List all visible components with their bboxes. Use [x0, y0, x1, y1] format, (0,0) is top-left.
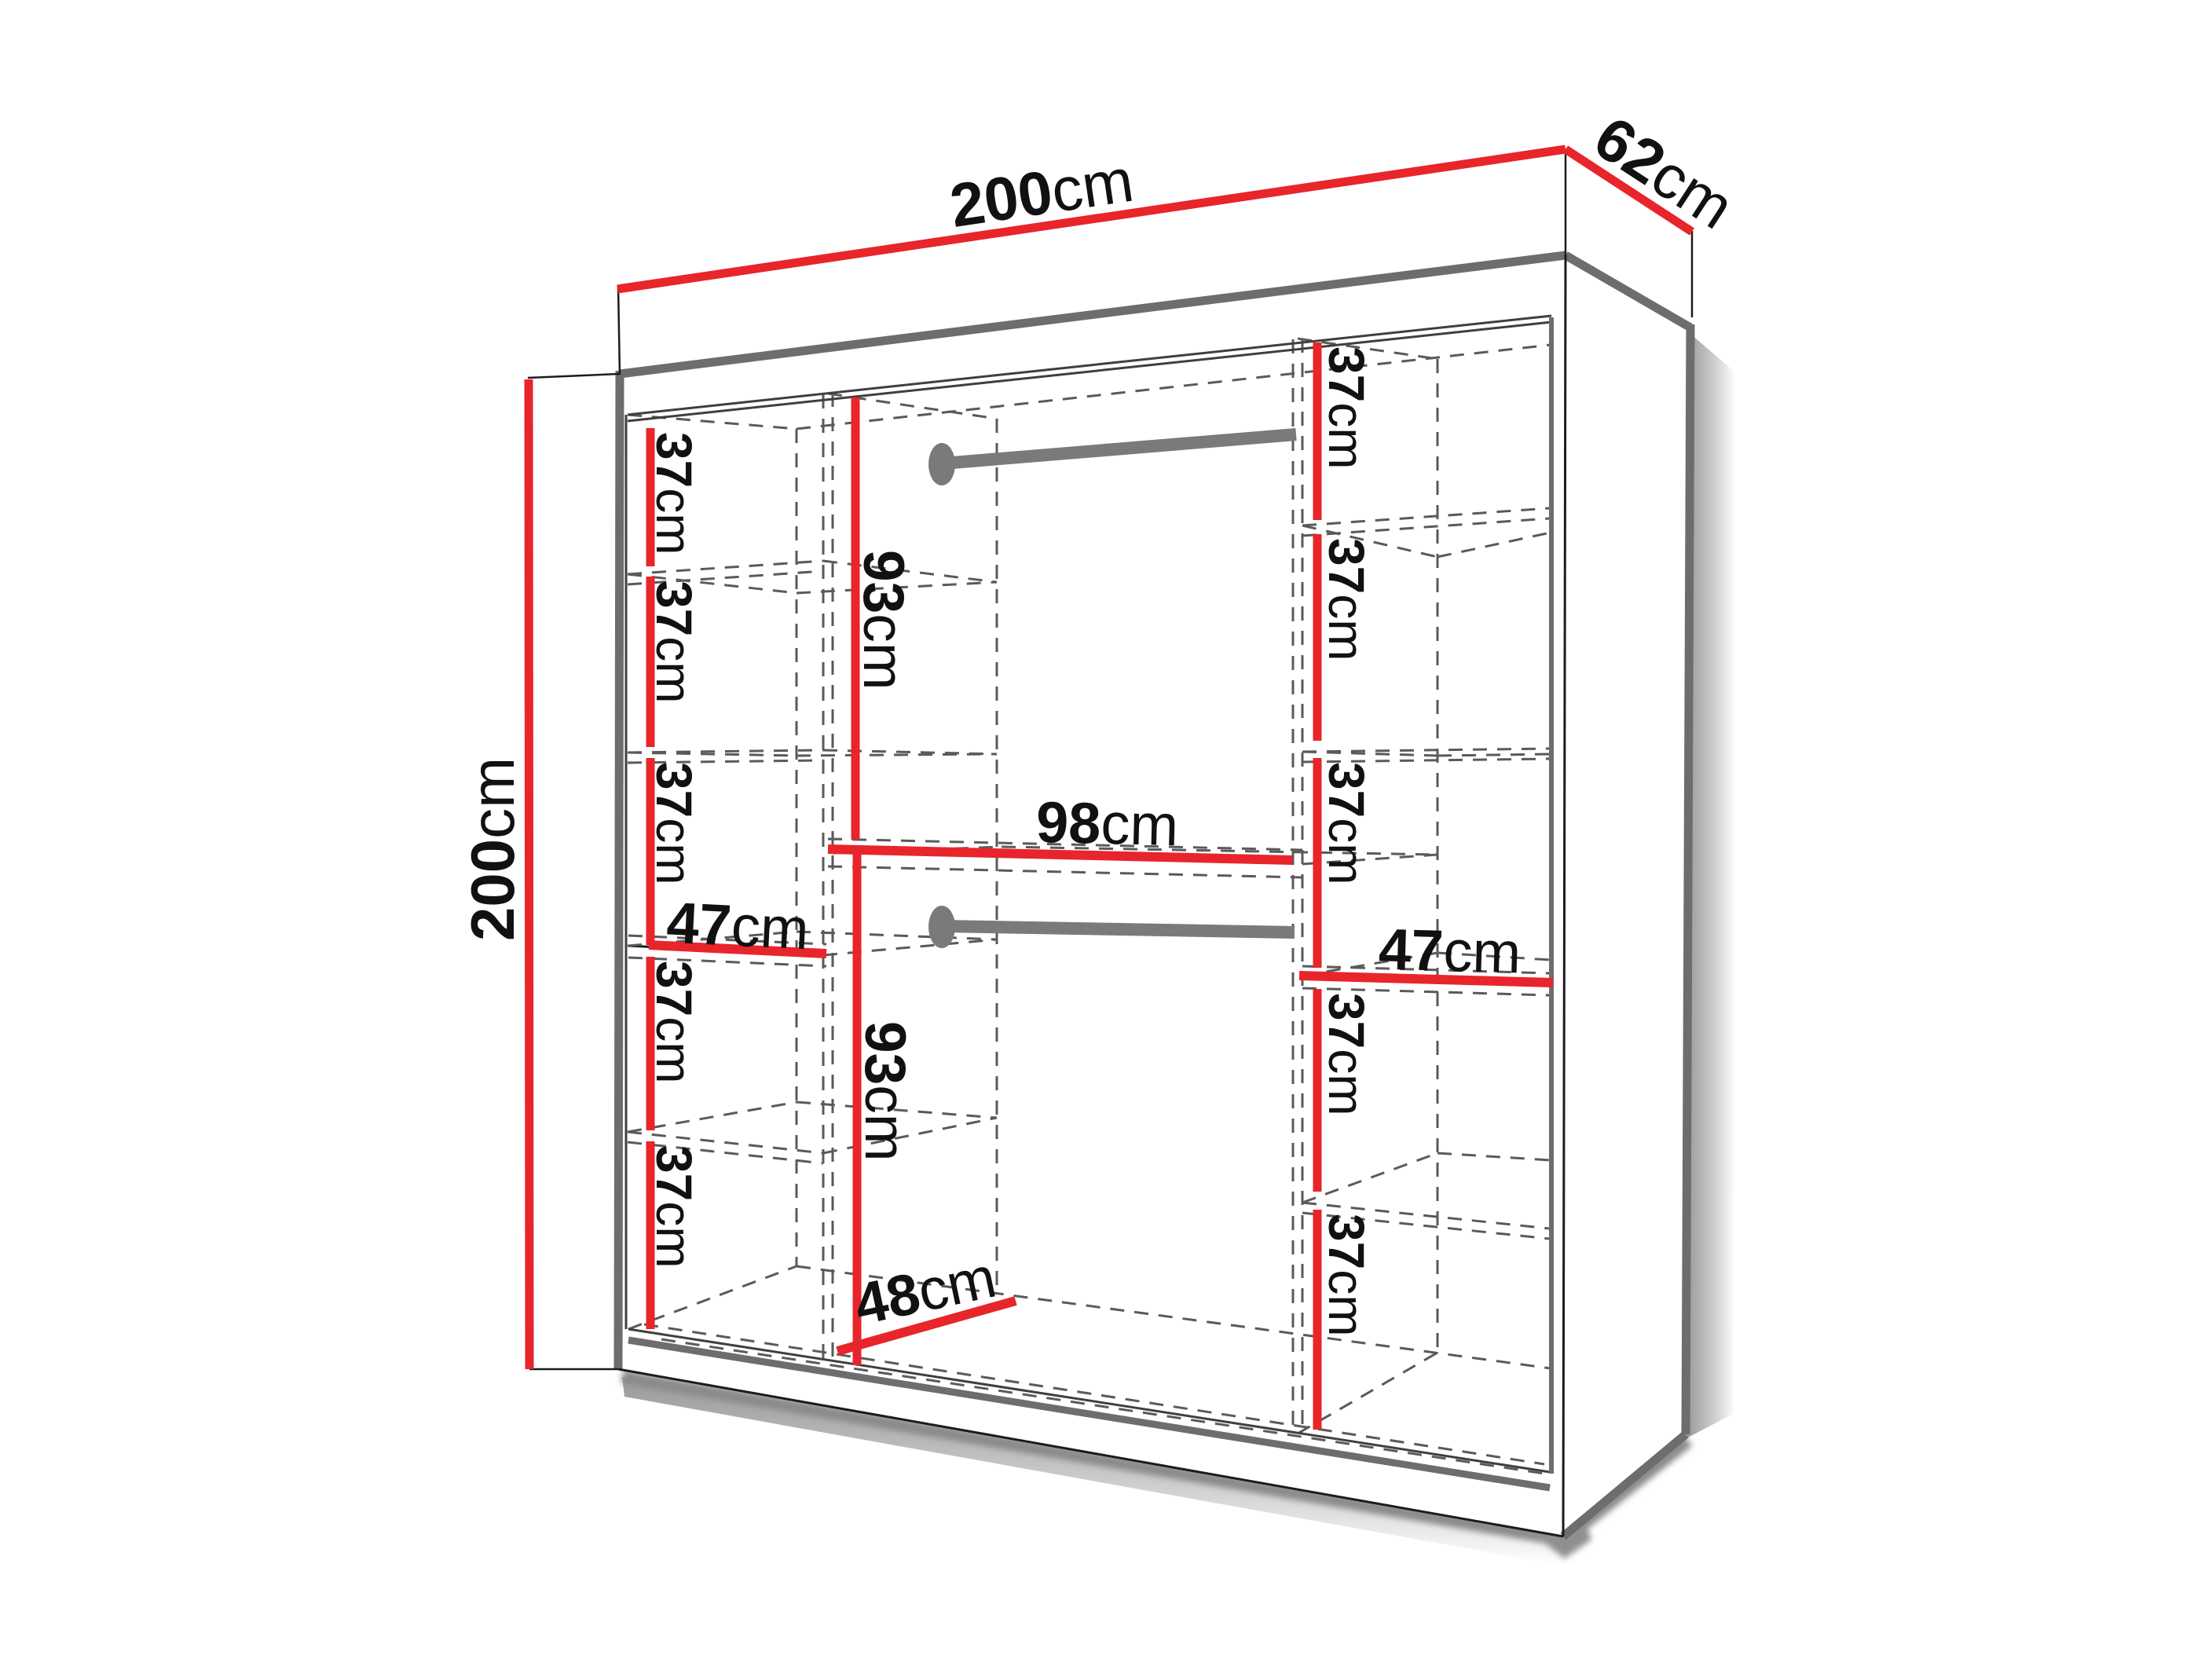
svg-text:37cm: 37cm — [1318, 346, 1375, 470]
svg-text:37cm: 37cm — [1318, 762, 1375, 885]
svg-text:93cm: 93cm — [853, 1021, 917, 1162]
svg-text:93cm: 93cm — [851, 550, 915, 690]
svg-text:37cm: 37cm — [646, 961, 702, 1084]
svg-text:37cm: 37cm — [1318, 1214, 1375, 1337]
svg-text:98cm: 98cm — [1035, 789, 1179, 858]
svg-text:37cm: 37cm — [646, 762, 702, 885]
svg-text:47cm: 47cm — [1378, 916, 1522, 985]
svg-text:37cm: 37cm — [646, 1145, 702, 1269]
svg-text:37cm: 37cm — [646, 580, 702, 704]
svg-text:37cm: 37cm — [1318, 993, 1375, 1116]
svg-text:37cm: 37cm — [1318, 538, 1375, 661]
svg-text:37cm: 37cm — [646, 432, 702, 555]
svg-text:47cm: 47cm — [665, 890, 811, 962]
svg-text:200cm: 200cm — [458, 757, 527, 941]
